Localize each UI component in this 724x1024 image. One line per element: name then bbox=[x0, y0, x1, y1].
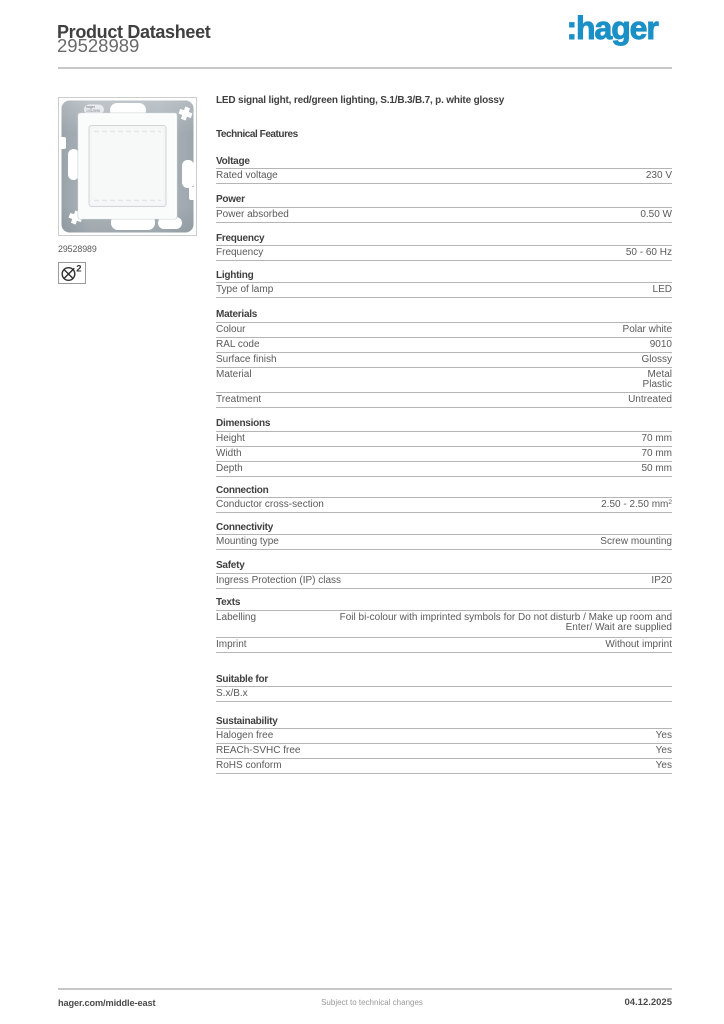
svg-text:10S2898: 10S2898 bbox=[86, 109, 100, 113]
svg-text:2: 2 bbox=[76, 264, 81, 275]
